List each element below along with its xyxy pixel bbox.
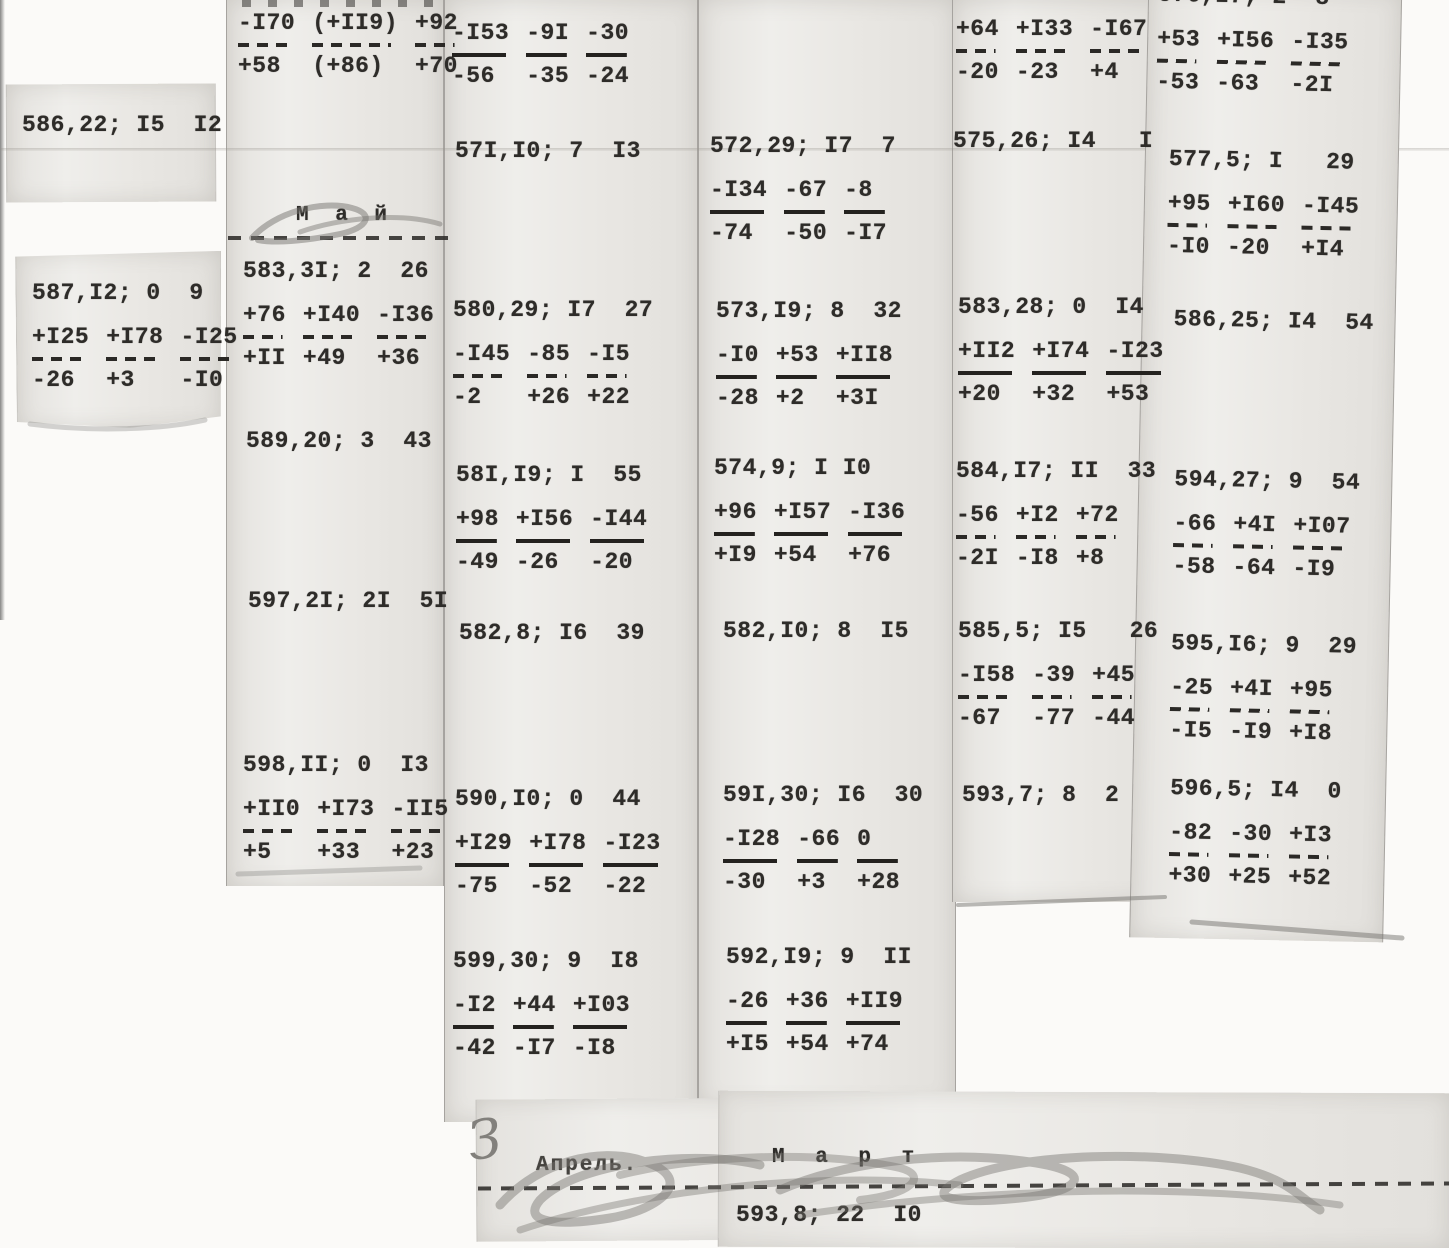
value-cell: +45: [1092, 660, 1135, 690]
entry-value-grid: -I2+44+I03-42-I7-I8: [453, 990, 639, 1063]
entry-header: 593,8; 22 I0: [736, 1202, 922, 1228]
month-label-may: М а й: [296, 204, 394, 227]
entry-header: 572,29; I7 7: [710, 133, 896, 159]
value-cell: +I33: [1016, 14, 1073, 44]
entry-value-grid: +96+I57-I36+I9+54+76: [714, 497, 905, 570]
value-cell: +72: [1076, 500, 1119, 530]
value-cell: -56: [956, 500, 999, 530]
data-entry: 582,I0; 8 I5: [723, 618, 909, 644]
entry-header: 592,I9; 9 II: [726, 944, 912, 970]
data-entry: 583,3I; 2 26+76+I40-I36+II+49+36: [243, 258, 434, 373]
value-cell: +I9: [714, 532, 757, 570]
data-entry: 574,9; I I0+96+I57-I36+I9+54+76: [714, 455, 905, 570]
value-cell: +I73: [317, 794, 374, 824]
data-entry: 593,7; 8 2: [962, 782, 1119, 808]
dashed-separator-may: [228, 236, 450, 240]
entry-value-grid: +I25+I78-I25-26+3-I0: [32, 322, 238, 395]
data-entry: -I53-9I-30-56-35-24: [452, 18, 629, 91]
value-cell: -I36: [377, 300, 434, 330]
value-cell: +23: [391, 829, 448, 867]
entry-header: 584,I7; II 33: [956, 458, 1156, 484]
entry-header: 590,I0; 0 44: [455, 786, 661, 812]
entry-header: 574,9; I I0: [714, 455, 905, 481]
value-cell: -I45: [453, 339, 510, 369]
value-cell: -I23: [603, 828, 660, 858]
scanned-document-page: 576,I7; 2 8+53+I56-I35-53-63-2I577,5; I …: [0, 0, 1449, 1248]
data-entry: 587,I2; 0 9+I25+I78-I25-26+3-I0: [32, 280, 238, 395]
value-cell: -67: [958, 695, 1015, 733]
value-cell: +36: [377, 335, 434, 373]
data-entry: 58I,I9; I 55+98+I56-I44-49-26-20: [456, 462, 647, 577]
value-cell: +I74: [1032, 336, 1089, 366]
entry-value-grid: -I45-85-I5-2+26+22: [453, 339, 653, 412]
value-cell: +II8: [836, 340, 893, 370]
value-cell: +8: [1076, 535, 1119, 573]
entry-header: 582,I0; 8 I5: [723, 618, 909, 644]
value-cell: +49: [303, 335, 360, 373]
value-cell: (+86): [312, 43, 398, 81]
value-cell: -42: [453, 1025, 496, 1063]
value-cell: -I23: [1106, 336, 1163, 366]
entry-header: 598,II; 0 I3: [243, 752, 449, 778]
data-entry: +64+I33-I67-20-23+4: [956, 14, 1147, 87]
value-cell: -66: [797, 824, 840, 854]
value-cell: -I67: [1090, 14, 1147, 44]
entry-header: 589,20; 3 43: [246, 428, 432, 454]
entry-value-grid: -I70(+II9)+92+58(+86)+70: [238, 8, 458, 81]
value-cell: -26: [516, 539, 573, 577]
value-cell: -50: [784, 210, 827, 248]
value-cell: -49: [456, 539, 499, 577]
value-cell: +4: [1090, 49, 1147, 87]
value-cell: -85: [527, 339, 570, 369]
value-cell: -28: [716, 375, 759, 413]
value-cell: +2: [776, 375, 819, 413]
value-cell: +II0: [243, 794, 300, 824]
value-cell: -67: [784, 175, 827, 205]
value-cell: -8: [844, 175, 887, 205]
value-cell: -I70: [238, 8, 295, 38]
value-cell: +53: [1106, 371, 1163, 409]
month-label-march: М а р т: [772, 1146, 923, 1169]
entry-value-grid: -26+36+II9+I5+54+74: [726, 986, 912, 1059]
data-entry: 592,I9; 9 II-26+36+II9+I5+54+74: [726, 944, 912, 1059]
value-cell: -I2: [453, 990, 496, 1020]
value-cell: -74: [710, 210, 767, 248]
value-cell: +28: [857, 859, 900, 897]
entry-header: 573,I9; 8 32: [716, 298, 902, 324]
value-cell: +76: [243, 300, 286, 330]
entry-value-grid: +II0+I73-II5+5+33+23: [243, 794, 449, 867]
data-entry: 575,26; I4 I: [953, 128, 1153, 154]
value-cell: -9I: [526, 18, 569, 48]
value-cell: +I78: [529, 828, 586, 858]
value-cell: +58: [238, 43, 295, 81]
value-cell: -I8: [1016, 535, 1059, 573]
value-cell: -75: [455, 863, 512, 901]
entry-header: 580,29; I7 27: [453, 297, 653, 323]
entry-header: 583,3I; 2 26: [243, 258, 434, 284]
value-cell: -56: [452, 53, 509, 91]
value-cell: -I44: [590, 504, 647, 534]
data-entry: 598,II; 0 I3+II0+I73-II5+5+33+23: [243, 752, 449, 867]
value-cell: +II2: [958, 336, 1015, 366]
value-cell: +3: [106, 357, 163, 395]
value-cell: +98: [456, 504, 499, 534]
value-cell: 0: [857, 824, 900, 854]
value-cell: -52: [529, 863, 586, 901]
entry-value-grid: -I34-67-8-74-50-I7: [710, 175, 896, 248]
entry-header: 59I,30; I6 30: [723, 782, 923, 808]
entry-header: 599,30; 9 I8: [453, 948, 639, 974]
entry-value-grid: +64+I33-I67-20-23+4: [956, 14, 1147, 87]
value-cell: +II9: [846, 986, 903, 1016]
value-cell: -2I: [956, 535, 999, 573]
value-cell: +76: [848, 532, 905, 570]
value-cell: +I40: [303, 300, 360, 330]
data-entry: 582,8; I6 39: [459, 620, 645, 646]
value-cell: -30: [723, 859, 780, 897]
value-cell: +5: [243, 829, 300, 867]
value-cell: -20: [590, 539, 647, 577]
value-cell: +20: [958, 371, 1015, 409]
value-cell: +26: [527, 374, 570, 412]
value-cell: -30: [586, 18, 629, 48]
data-entry: 585,5; I5 26-I58-39+45-67-77-44: [958, 618, 1158, 733]
entry-value-grid: +I29+I78-I23-75-52-22: [455, 828, 661, 901]
entry-header: 583,28; 0 I4: [958, 294, 1164, 320]
value-cell: -77: [1032, 695, 1075, 733]
value-cell: -I34: [710, 175, 767, 205]
entry-value-grid: +76+I40-I36+II+49+36: [243, 300, 434, 373]
data-entry: 572,29; I7 7-I34-67-8-74-50-I7: [710, 133, 896, 248]
value-cell: +3: [797, 859, 840, 897]
data-entry: -I70(+II9)+92+58(+86)+70: [238, 8, 458, 81]
value-cell: -22: [603, 863, 660, 901]
entries-layer: 586,22; I5 I2587,I2; 0 9+I25+I78-I25-26+…: [0, 0, 1449, 1248]
value-cell: -I0: [716, 340, 759, 370]
value-cell: -I53: [452, 18, 509, 48]
value-cell: +I78: [106, 322, 163, 352]
value-cell: +I2: [1016, 500, 1059, 530]
value-cell: -24: [586, 53, 629, 91]
value-cell: +I57: [774, 497, 831, 527]
entry-value-grid: -I0+53+II8-28+2+3I: [716, 340, 902, 413]
entry-value-grid: -I58-39+45-67-77-44: [958, 660, 1158, 733]
value-cell: -20: [956, 49, 999, 87]
value-cell: -26: [32, 357, 89, 395]
value-cell: +I5: [726, 1021, 769, 1059]
value-cell: +96: [714, 497, 757, 527]
data-entry: 580,29; I7 27-I45-85-I5-2+26+22: [453, 297, 653, 412]
entry-header: 575,26; I4 I: [953, 128, 1153, 154]
entry-header: 582,8; I6 39: [459, 620, 645, 646]
entry-header: 587,I2; 0 9: [32, 280, 238, 306]
value-cell: +3I: [836, 375, 893, 413]
entry-header: 586,22; I5 I2: [22, 112, 222, 138]
value-cell: -I36: [848, 497, 905, 527]
value-cell: -44: [1092, 695, 1135, 733]
data-entry: 599,30; 9 I8-I2+44+I03-42-I7-I8: [453, 948, 639, 1063]
entry-header: 593,7; 8 2: [962, 782, 1119, 808]
month-label-april: Апрель.: [536, 1154, 638, 1177]
value-cell: -I28: [723, 824, 780, 854]
entry-header: 57I,I0; 7 I3: [455, 138, 641, 164]
value-cell: +54: [774, 532, 831, 570]
value-cell: +32: [1032, 371, 1089, 409]
value-cell: +36: [786, 986, 829, 1016]
value-cell: (+II9): [312, 8, 398, 38]
entry-header: 597,2I; 2I 5I: [248, 588, 448, 614]
data-entry: 593,8; 22 I0: [736, 1202, 922, 1228]
data-entry: 583,28; 0 I4+II2+I74-I23+20+32+53: [958, 294, 1164, 409]
entry-value-grid: -56+I2+72-2I-I8+8: [956, 500, 1156, 573]
data-entry: 57I,I0; 7 I3: [455, 138, 641, 164]
value-cell: -I8: [573, 1025, 630, 1063]
data-entry: 590,I0; 0 44+I29+I78-I23-75-52-22: [455, 786, 661, 901]
data-entry: 597,2I; 2I 5I: [248, 588, 448, 614]
value-cell: +33: [317, 829, 374, 867]
value-cell: +22: [587, 374, 630, 412]
value-cell: +64: [956, 14, 999, 44]
data-entry: 589,20; 3 43: [246, 428, 432, 454]
value-cell: +I56: [516, 504, 573, 534]
data-entry: 586,22; I5 I2: [22, 112, 222, 138]
value-cell: +54: [786, 1021, 829, 1059]
value-cell: +I29: [455, 828, 512, 858]
entry-header: 58I,I9; I 55: [456, 462, 647, 488]
value-cell: -39: [1032, 660, 1075, 690]
entry-value-grid: -I53-9I-30-56-35-24: [452, 18, 629, 91]
value-cell: +74: [846, 1021, 903, 1059]
value-cell: -I5: [587, 339, 630, 369]
entry-value-grid: +98+I56-I44-49-26-20: [456, 504, 647, 577]
value-cell: +44: [513, 990, 556, 1020]
value-cell: +53: [776, 340, 819, 370]
value-cell: -I25: [180, 322, 237, 352]
value-cell: -26: [726, 986, 769, 1016]
data-entry: 573,I9; 8 32-I0+53+II8-28+2+3I: [716, 298, 902, 413]
value-cell: -23: [1016, 49, 1073, 87]
data-entry: 584,I7; II 33-56+I2+72-2I-I8+8: [956, 458, 1156, 573]
value-cell: +II: [243, 335, 286, 373]
entry-value-grid: -I28-660-30+3+28: [723, 824, 923, 897]
value-cell: +I25: [32, 322, 89, 352]
value-cell: +I03: [573, 990, 630, 1020]
value-cell: -I7: [844, 210, 887, 248]
value-cell: -2: [453, 374, 510, 412]
value-cell: -II5: [391, 794, 448, 824]
entry-header: 585,5; I5 26: [958, 618, 1158, 644]
entry-value-grid: +II2+I74-I23+20+32+53: [958, 336, 1164, 409]
value-cell: -I0: [180, 357, 237, 395]
data-entry: 59I,30; I6 30-I28-660-30+3+28: [723, 782, 923, 897]
value-cell: -I58: [958, 660, 1015, 690]
value-cell: -35: [526, 53, 569, 91]
value-cell: -I7: [513, 1025, 556, 1063]
